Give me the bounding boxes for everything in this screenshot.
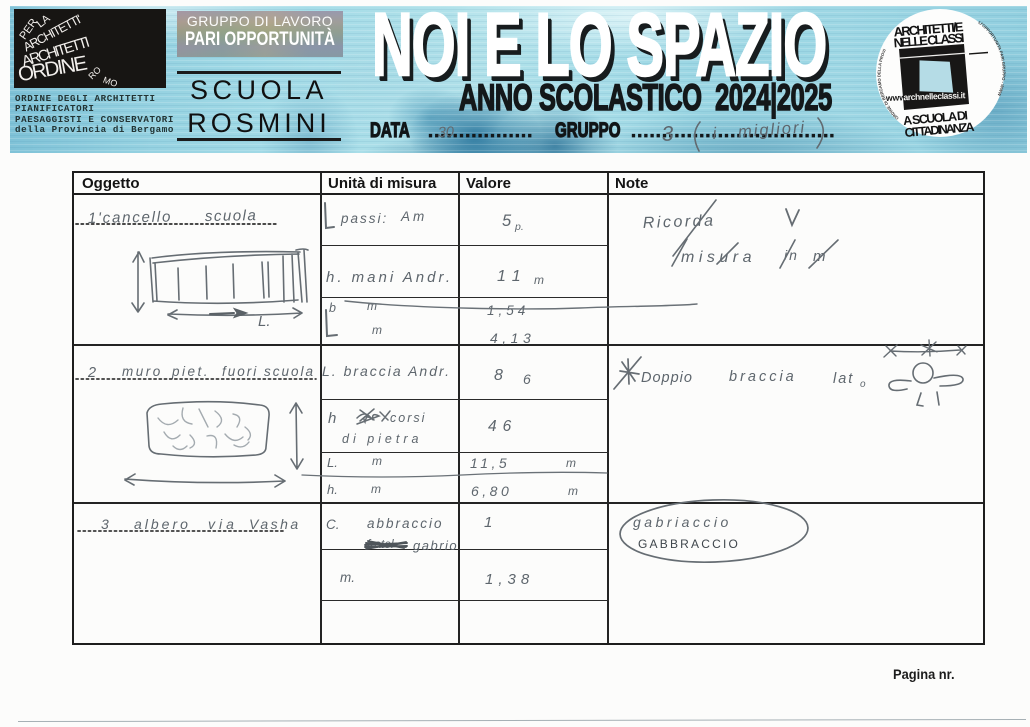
svg-text:corsi: corsi xyxy=(390,411,426,425)
svg-text:46: 46 xyxy=(488,418,517,435)
svg-text:o: o xyxy=(860,379,866,390)
svg-text:11: 11 xyxy=(497,268,528,285)
svg-text:3: 3 xyxy=(101,516,109,532)
svg-text:6: 6 xyxy=(523,371,531,387)
svg-text:m: m xyxy=(372,323,382,337)
svg-text:muro: muro xyxy=(122,364,163,379)
svg-text:4,13: 4,13 xyxy=(490,330,535,346)
svg-text:abbraccio: abbraccio xyxy=(367,516,444,531)
svg-text:gabriaccio: gabriaccio xyxy=(633,514,732,530)
svg-text:albero: albero xyxy=(134,516,191,532)
svg-text:GABBRACCIO: GABBRACCIO xyxy=(638,537,740,551)
svg-text:lat: lat xyxy=(833,371,854,387)
svg-text:Vasha: Vasha xyxy=(249,516,301,532)
svg-text:1: 1 xyxy=(484,514,492,531)
svg-text:L.: L. xyxy=(327,455,338,470)
svg-text:Doppio: Doppio xyxy=(641,370,693,386)
svg-text:di pietra: di pietra xyxy=(342,432,422,446)
svg-text:gabrio: gabrio xyxy=(413,538,458,553)
svg-text:m: m xyxy=(568,484,578,498)
svg-text:8: 8 xyxy=(494,367,503,384)
svg-text:5: 5 xyxy=(502,212,512,230)
svg-text:i migliori: i migliori xyxy=(712,118,807,142)
svg-text:h: h xyxy=(328,410,336,427)
svg-text:m: m xyxy=(372,454,382,468)
svg-text:m.: m. xyxy=(340,570,355,585)
svg-text:L.: L. xyxy=(258,313,271,330)
svg-text:braccia: braccia xyxy=(729,369,797,385)
svg-text:m: m xyxy=(566,456,576,470)
svg-text:b: b xyxy=(329,301,336,315)
svg-text:via: via xyxy=(208,516,238,532)
svg-text:Am: Am xyxy=(400,209,427,224)
svg-text:m: m xyxy=(371,482,381,496)
svg-text:fuori scuola: fuori scuola xyxy=(222,364,315,379)
svg-text:6,80: 6,80 xyxy=(471,483,512,499)
svg-text:h.: h. xyxy=(327,482,338,497)
svg-text:11,5: 11,5 xyxy=(470,455,510,471)
svg-text:C.: C. xyxy=(326,517,340,532)
svg-text:m: m xyxy=(367,299,377,313)
svg-text:1,54: 1,54 xyxy=(487,303,529,318)
svg-text:3: 3 xyxy=(661,122,674,146)
svg-text:passi:: passi: xyxy=(340,211,388,226)
svg-text:h. mani Andr.: h. mani Andr. xyxy=(326,269,453,286)
svg-text:scuola: scuola xyxy=(205,207,258,225)
svg-text:piet.: piet. xyxy=(171,364,210,379)
svg-text:1,38: 1,38 xyxy=(485,571,534,588)
svg-text:L. braccia Andr.: L. braccia Andr. xyxy=(322,363,451,379)
svg-text:p.: p. xyxy=(514,221,524,233)
svg-text:30: 30 xyxy=(438,124,455,141)
svg-text:m: m xyxy=(534,273,544,287)
